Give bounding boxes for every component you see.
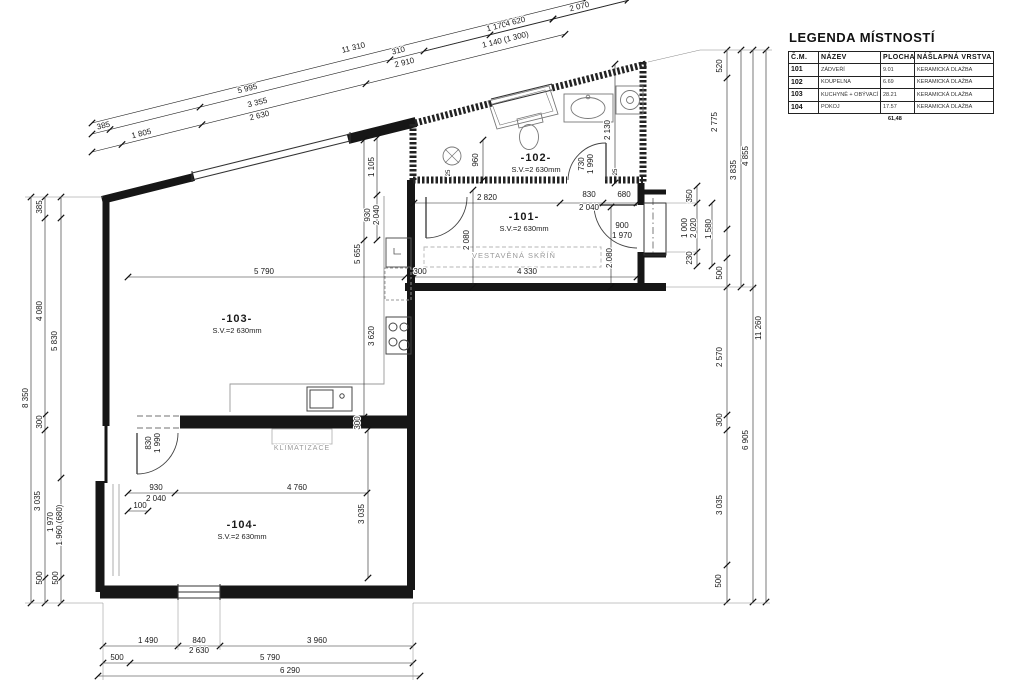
legend-col-3: NÁŠLAPNÁ VRSTVA xyxy=(915,52,994,64)
dim-label: 6 290 xyxy=(280,666,301,675)
dim-label: 2 020 xyxy=(689,217,698,238)
dim-label: 930 xyxy=(149,483,163,492)
room-number-label: -103- xyxy=(222,313,253,325)
dim-label: 3 835 xyxy=(729,159,738,180)
dim-line xyxy=(387,57,393,63)
dim-label: 300 xyxy=(715,413,724,427)
legend-header-row: Č.M.NÁZEVPLOCHANÁŠLAPNÁ VRSTVA xyxy=(789,52,994,64)
dim-label: 4 760 xyxy=(287,483,308,492)
dim-label: 100 xyxy=(133,501,147,510)
legend-cell: 103 xyxy=(789,89,819,102)
entrance-door xyxy=(594,198,666,255)
legend-row: 102KOUPELNA6.69KERAMICKÁ DLAŽBA xyxy=(789,76,994,89)
dim-label: 3 035 xyxy=(357,503,366,524)
legend-table: Č.M.NÁZEVPLOCHANÁŠLAPNÁ VRSTVA 101ZÁDVEŘ… xyxy=(788,51,994,114)
dim-label: 2 040 xyxy=(372,204,381,225)
legend-cell: 9.01 xyxy=(881,64,915,77)
annotation-label: VESTAVĚNÁ SKŘÍŇ xyxy=(472,251,556,260)
legend-row: 104POKOJ17.57KERAMICKÁ DLAŽBA xyxy=(789,101,994,114)
dim-line xyxy=(89,120,95,126)
room-number-label: -104- xyxy=(227,519,258,531)
dim-label: 5 790 xyxy=(254,267,275,276)
legend-cell: KOUPELNA xyxy=(819,76,881,89)
legend-cell: 6.69 xyxy=(881,76,915,89)
dim-label: 1 105 xyxy=(367,156,376,177)
dim-label: 25 xyxy=(446,169,452,176)
dim-label: 300 xyxy=(35,415,44,429)
dim-label: 300 xyxy=(413,267,427,276)
legend-cell: 102 xyxy=(789,76,819,89)
dim-label: 25 xyxy=(613,168,619,175)
dim-label: 3 035 xyxy=(715,494,724,515)
legend-col-2: PLOCHA xyxy=(881,52,915,64)
dim-label: 300 xyxy=(353,416,362,430)
legend-cell: 104 xyxy=(789,101,819,114)
room-height-label: S.V.=2 630mm xyxy=(499,224,548,233)
dim-line xyxy=(89,131,95,137)
dim-label: 2 040 xyxy=(146,494,167,503)
dim-label: 500 xyxy=(714,574,723,588)
dim-line xyxy=(197,104,203,110)
dim-label: 2 910 xyxy=(394,56,416,70)
room-number-label: -102- xyxy=(521,152,552,164)
dim-label: 930 xyxy=(363,208,372,222)
dim-label: 1 000 xyxy=(680,217,689,238)
legend-cell: KERAMICKÁ DLAŽBA xyxy=(915,89,994,102)
dim-label: 830 xyxy=(582,190,596,199)
legend-cell: 101 xyxy=(789,64,819,77)
dim-label: 2 630 xyxy=(189,646,210,655)
floor-plan-page: 3851 80511 3105 9953 3552 6303102 9101 1… xyxy=(0,0,1024,688)
dim-label: 500 xyxy=(715,266,724,280)
legend-cell: 28.21 xyxy=(881,89,915,102)
dim-label: 520 xyxy=(715,59,724,73)
dim-line xyxy=(648,50,700,62)
dim-line xyxy=(92,34,565,152)
dim-label: 960 xyxy=(471,153,480,167)
dim-label: 2 080 xyxy=(605,247,614,268)
room-height-label: S.V.=2 630mm xyxy=(511,165,560,174)
dim-label: 830 xyxy=(144,436,153,450)
exterior-walls xyxy=(100,122,666,592)
dim-label: 3 035 xyxy=(33,490,42,511)
dim-label: 1 805 xyxy=(131,127,153,141)
dim-label: 385 xyxy=(35,200,44,214)
dim-label: 11 310 xyxy=(341,40,367,55)
kitchen-fixtures xyxy=(230,196,411,412)
legend-title: LEGENDA MÍSTNOSTÍ xyxy=(789,30,1000,45)
legend-cell: KERAMICKÁ DLAŽBA xyxy=(915,64,994,77)
dim-label: 2 070 xyxy=(569,0,591,13)
legend-cell: KUCHYNĚ + OBÝVACÍ POKOJ xyxy=(819,89,881,102)
washing-machine-icon xyxy=(616,86,643,114)
shower-drain-icon xyxy=(443,147,461,165)
ac-unit xyxy=(272,429,332,444)
dim-label: 2 040 xyxy=(579,203,600,212)
dim-line xyxy=(119,141,125,147)
kitchen-sink-icon xyxy=(307,387,352,411)
legend-col-0: Č.M. xyxy=(789,52,819,64)
legend-cell: 17.57 xyxy=(881,101,915,114)
dim-label: 1 990 xyxy=(586,153,595,174)
washbasin-icon xyxy=(564,94,613,122)
dim-line xyxy=(199,121,205,127)
dim-label: 1 970 xyxy=(46,511,55,532)
dim-label: 5 655 xyxy=(353,243,362,264)
dim-label: 730 xyxy=(577,157,586,171)
legend-row: 103KUCHYNĚ + OBÝVACÍ POKOJ28.21KERAMICKÁ… xyxy=(789,89,994,102)
dim-line xyxy=(92,0,629,134)
dim-label: 680 xyxy=(617,190,631,199)
dim-line xyxy=(89,149,95,155)
bathtub-icon xyxy=(488,86,558,129)
dim-label: 230 xyxy=(685,251,694,265)
dim-label: 2 630 xyxy=(249,109,271,123)
dim-label: 3 355 xyxy=(247,96,269,110)
dim-line xyxy=(424,0,628,51)
dim-label: 5 830 xyxy=(50,330,59,351)
dim-label: 3 960 xyxy=(307,636,328,645)
dim-label: 2 775 xyxy=(710,111,719,132)
dimension-labels: 3851 80511 3105 9953 3552 6303102 9101 1… xyxy=(21,0,763,675)
dim-label: 1 990 xyxy=(153,432,162,453)
window-south xyxy=(178,584,220,600)
dim-label: 500 xyxy=(35,571,44,585)
dimension-lines xyxy=(25,0,772,680)
dim-label: 2 570 xyxy=(715,346,724,367)
dim-label: 2 820 xyxy=(477,193,498,202)
dim-label: 8 350 xyxy=(21,387,30,408)
dim-label: 1 960 (680) xyxy=(55,504,64,545)
dim-label: 500 xyxy=(51,571,60,585)
legend-cell: KERAMICKÁ DLAŽBA xyxy=(915,76,994,89)
dim-line xyxy=(363,81,369,87)
legend-cell: ZÁDVEŘÍ xyxy=(819,64,881,77)
dim-line xyxy=(562,31,568,37)
dim-label: 350 xyxy=(685,189,694,203)
dim-label: 1 580 xyxy=(704,218,713,239)
legend-total-area: 61,48 xyxy=(888,116,1000,122)
legend-cell: KERAMICKÁ DLAŽBA xyxy=(915,101,994,114)
dim-label: 840 xyxy=(192,636,206,645)
dim-label: 900 xyxy=(615,221,629,230)
room-number-label: -101- xyxy=(509,211,540,223)
dim-label: 500 xyxy=(110,653,124,662)
dim-label: 5 790 xyxy=(260,653,281,662)
dim-label: 2 080 xyxy=(462,229,471,250)
window-northwest xyxy=(192,132,350,182)
annotation-label: KLIMATIZACE xyxy=(274,445,330,452)
room-height-label: S.V.=2 630mm xyxy=(212,326,261,335)
dim-label: 6 905 xyxy=(741,429,750,450)
dim-label: 11 260 xyxy=(754,316,763,340)
dim-label: 3 620 xyxy=(367,325,376,346)
counter-edge xyxy=(230,196,384,412)
dim-label: 4 855 xyxy=(741,145,750,166)
dim-label: 310 xyxy=(391,44,407,56)
legend-col-1: NÁZEV xyxy=(819,52,881,64)
legend-panel: LEGENDA MÍSTNOSTÍ Č.M.NÁZEVPLOCHANÁŠLAPN… xyxy=(788,30,1000,122)
legend-row: 101ZÁDVEŘÍ9.01KERAMICKÁ DLAŽBA xyxy=(789,64,994,77)
dim-label: 1 970 xyxy=(612,231,633,240)
room-height-label: S.V.=2 630mm xyxy=(217,532,266,541)
dim-label: 1 490 xyxy=(138,636,159,645)
pipes xyxy=(113,484,119,576)
dim-label: 2 130 xyxy=(603,119,612,140)
dim-label: 4 330 xyxy=(517,267,538,276)
legend-cell: POKOJ xyxy=(819,101,881,114)
entrance-landing xyxy=(644,203,666,255)
dim-label: 4 080 xyxy=(35,300,44,321)
